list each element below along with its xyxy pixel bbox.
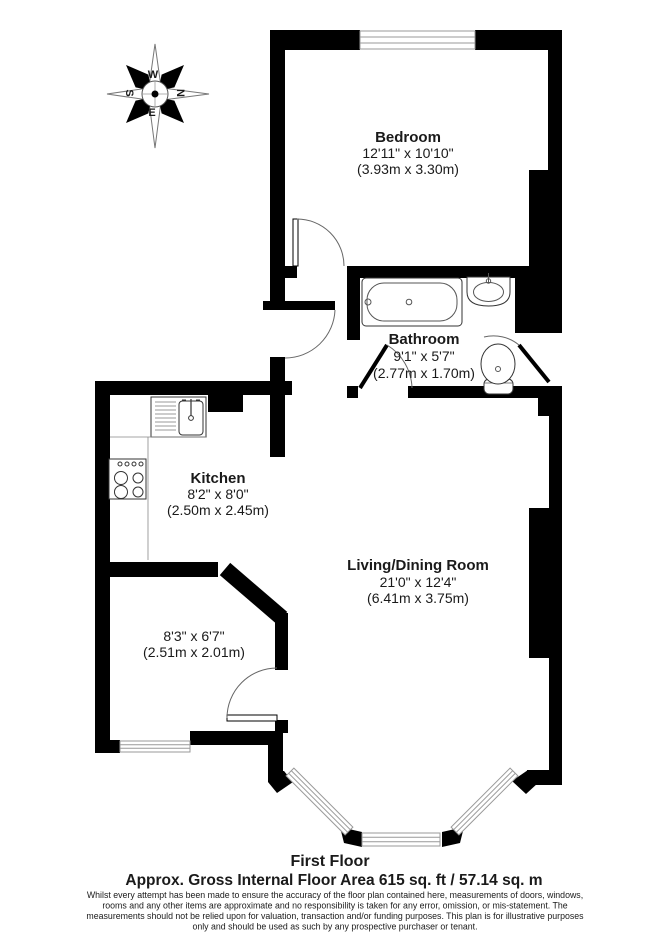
- hob: [109, 459, 146, 499]
- bedroom-window: [360, 31, 475, 49]
- bathroom-label: Bathroom: [389, 331, 460, 348]
- wall-store-right: [275, 613, 288, 670]
- floor-title: First Floor: [290, 853, 369, 870]
- disclaimer-line: measurements should not be relied upon f…: [86, 911, 584, 921]
- hall-door-arc: [285, 310, 335, 358]
- living-metric: (6.41m x 3.75m): [367, 590, 469, 606]
- wall-kitchen-diagonal: [225, 569, 282, 618]
- toilet: [481, 344, 515, 394]
- living-imperial: 21'0" x 12'4": [380, 574, 457, 590]
- wall-kitchen-left: [95, 381, 110, 753]
- bay-window-right: [451, 768, 518, 835]
- wall-bathroom-left: [347, 266, 360, 340]
- bay-window-bottom: [362, 833, 440, 846]
- wall-bathroom-bottom-stub: [347, 386, 358, 398]
- wall-kitchen-bottom: [110, 562, 218, 577]
- store-window: [120, 741, 190, 752]
- wall-bedroom-right-lower: [529, 170, 562, 278]
- wall-bottom-left-corner: [95, 740, 120, 753]
- windows: [120, 31, 518, 846]
- wall-living-right-jog: [538, 386, 551, 416]
- store-imperial: 8'3" x 6'7": [163, 628, 224, 644]
- floor-plan-svg: W N E S Bedroom 12'11" x 10'10" (3.93m x…: [0, 0, 670, 948]
- compass-north-label: N: [174, 89, 186, 97]
- wall-kitchen-stub: [208, 395, 243, 412]
- bathroom-metric: (2.77m x 1.70m): [373, 365, 475, 381]
- living-label: Living/Dining Room: [347, 557, 489, 574]
- kitchen-sink: [151, 397, 206, 437]
- kitchen-metric: (2.50m x 2.45m): [167, 502, 269, 518]
- disclaimer-line: rooms and any other items are approximat…: [102, 901, 567, 911]
- wall-bay-left: [268, 745, 283, 774]
- compass-rose: W N E S: [107, 44, 209, 148]
- compass-west-label: W: [148, 69, 159, 81]
- floor-plan-page: W N E S Bedroom 12'11" x 10'10" (3.93m x…: [0, 0, 670, 948]
- disclaimer-line: Whilst every attempt has been made to en…: [87, 890, 583, 900]
- wall-kitchen-top: [95, 381, 292, 395]
- floor-area: Approx. Gross Internal Floor Area 615 sq…: [125, 872, 542, 889]
- footer: First Floor Approx. Gross Internal Floor…: [86, 853, 584, 932]
- kitchen-imperial: 8'2" x 8'0": [187, 486, 248, 502]
- store-metric: (2.51m x 2.01m): [143, 644, 245, 660]
- bedroom-imperial: 12'11" x 10'10": [362, 145, 453, 161]
- wall-bedroom-right-upper: [548, 30, 562, 170]
- bay-window-left: [286, 768, 353, 835]
- bathroom-imperial: 9'1" x 5'7": [393, 348, 454, 364]
- bedroom-door: [293, 219, 344, 266]
- kitchen-label: Kitchen: [190, 470, 245, 487]
- compass-center-dot: [152, 91, 159, 98]
- wall-bedroom-bottom-stub: [278, 266, 297, 278]
- walls: [95, 30, 562, 847]
- wall-hall: [263, 301, 335, 310]
- wall-bathroom-right-mass: [515, 272, 562, 333]
- wall-living-right-block: [529, 508, 551, 658]
- bedroom-label: Bedroom: [375, 129, 441, 146]
- compass-east-label: E: [148, 107, 155, 119]
- wall-bathroom-bottom: [408, 386, 553, 398]
- wall-store-bay: [190, 731, 283, 745]
- basin: [467, 273, 510, 306]
- bedroom-metric: (3.93m x 3.30m): [357, 161, 459, 177]
- store-door: [227, 668, 277, 721]
- wall-hall-kitchen: [270, 357, 285, 457]
- compass-south-label: S: [123, 89, 135, 96]
- disclaimer-line: only and should be used as such by any p…: [192, 922, 477, 932]
- bath: [362, 278, 462, 326]
